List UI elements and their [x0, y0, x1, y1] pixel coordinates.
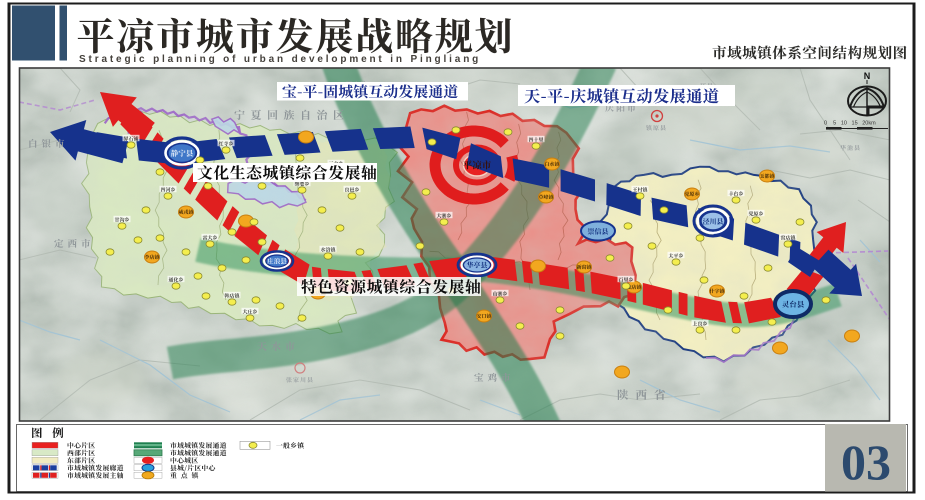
svg-text:N: N: [864, 71, 871, 81]
svg-text:0 5 10 15 20km: 0 5 10 15 20km: [824, 121, 876, 127]
svg-text:Strategic planning of urban de: Strategic planning of urban development …: [79, 54, 481, 65]
svg-text:03: 03: [841, 434, 891, 490]
